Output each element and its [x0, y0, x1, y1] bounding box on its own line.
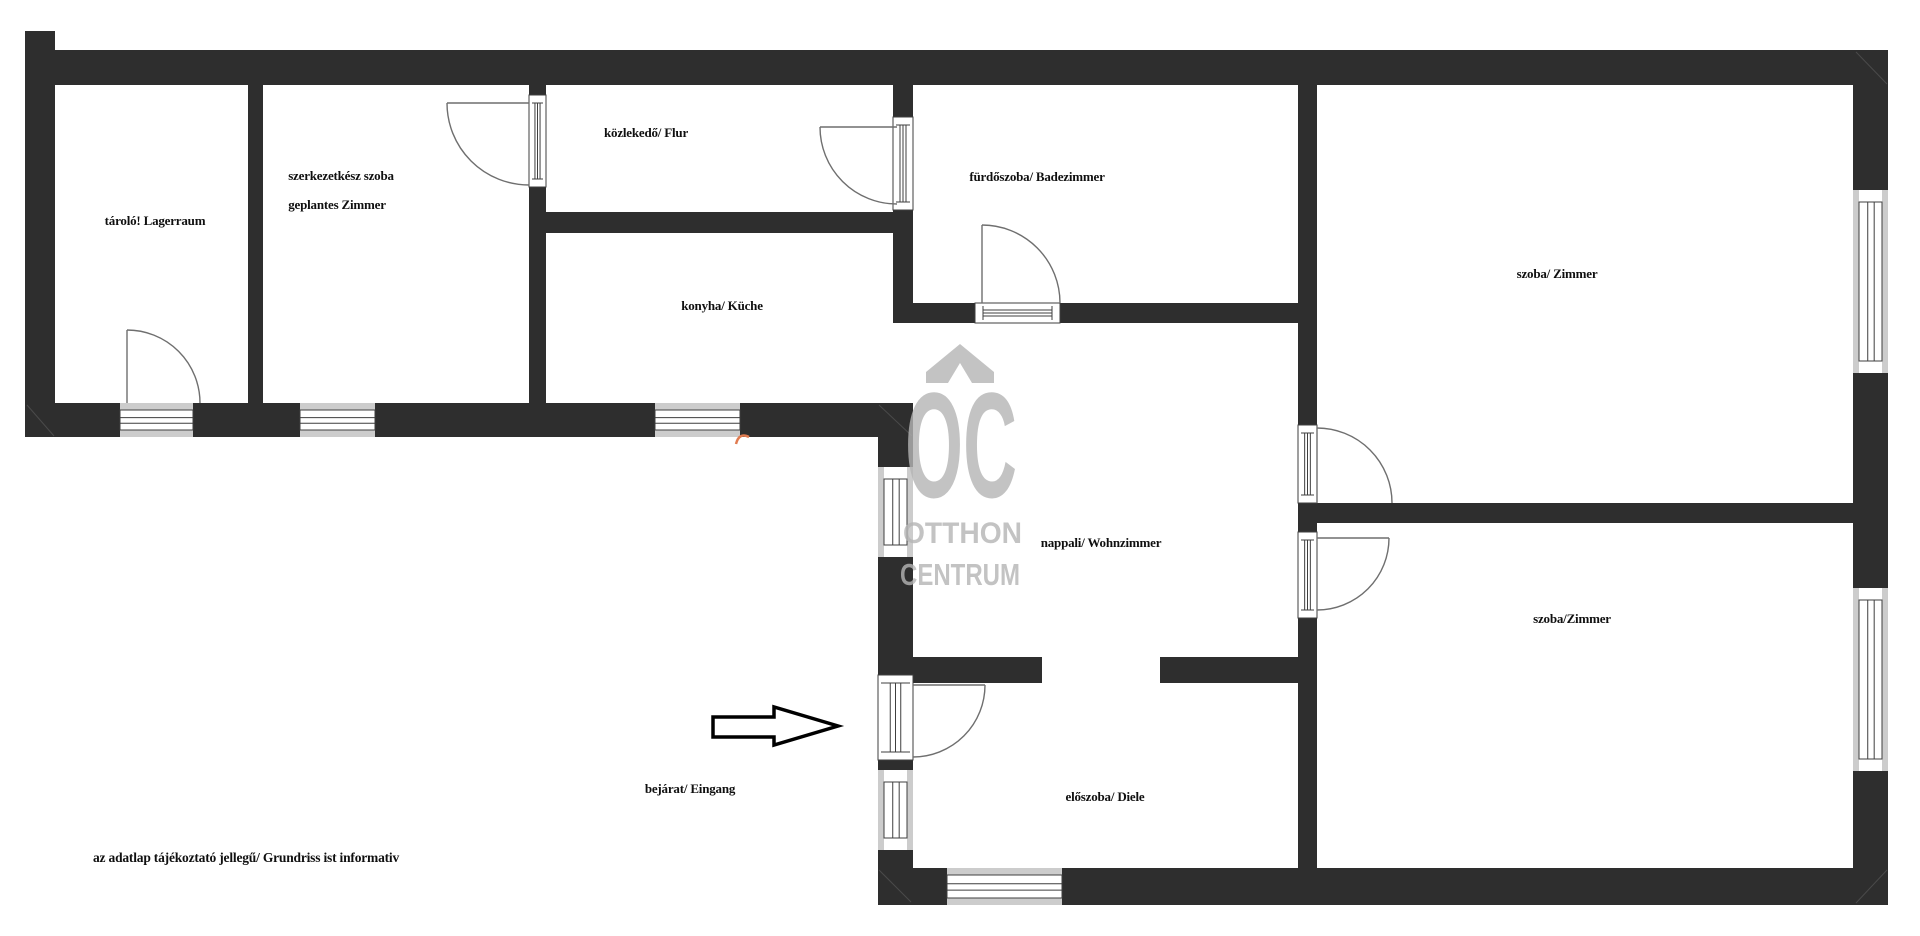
door-arc: [820, 127, 897, 204]
room-label-eloszoba: előszoba/ Diele: [1066, 789, 1145, 804]
room-label-szerk2: geplantes Zimmer: [288, 197, 386, 212]
room-label-taro: tároló! Lagerraum: [105, 213, 206, 228]
door-arc: [447, 103, 529, 185]
entrance-side-window: [878, 770, 913, 850]
room-label-kozlekedo: közlekedő/ Flur: [604, 125, 688, 140]
window-glass: [947, 875, 1062, 898]
floor-plan-page: OCOTTHONCENTRUM tároló! Lagerraumszerkez…: [0, 0, 1920, 936]
door-arc: [913, 685, 985, 757]
door-arc: [982, 225, 1060, 303]
entrance-door-frame: [878, 675, 913, 760]
wall-hall-livingroom-stub-right: [1160, 657, 1298, 683]
door-arc: [1317, 538, 1389, 610]
room-label-szoba-top: szoba/ Zimmer: [1517, 266, 1598, 281]
window-glass: [120, 410, 193, 430]
room2-window: [300, 403, 375, 437]
annotations-layer: [713, 436, 838, 745]
room-label-szerk1: szerkezetkész szoba: [288, 168, 394, 183]
disclaimer-text: az adatlap tájékoztató jellegű/ Grundris…: [93, 850, 399, 865]
watermark-layer: OCOTTHONCENTRUM: [900, 344, 1022, 592]
wall-flur-bottom: [546, 212, 893, 233]
storage-terrace-door: [120, 403, 193, 437]
watermark-otthon-text: OTTHON: [903, 517, 1022, 550]
bath-door-swing: [982, 225, 1060, 303]
room-top-door-swing: [1317, 428, 1392, 503]
watermark-oc-text: OC: [905, 361, 1017, 529]
room2-door-swing: [447, 103, 529, 185]
door-arc: [127, 330, 200, 403]
room-label-konyha: konyha/ Küche: [681, 298, 763, 313]
room2-flur-door-frame: [529, 95, 546, 187]
room-label-nappali: nappali/ Wohnzimmer: [1041, 535, 1162, 550]
wall-outer-top: [55, 50, 1888, 85]
flur-door-swing: [820, 127, 897, 204]
wall-outer-left-bar: [25, 31, 55, 437]
window-glass: [655, 410, 740, 430]
storage-door-swing: [127, 330, 200, 403]
window-frame: [884, 782, 907, 838]
watermark-logo: OCOTTHONCENTRUM: [900, 344, 1022, 592]
room-top-window: [1853, 190, 1888, 373]
window-frame: [1859, 202, 1882, 361]
hall-window: [947, 868, 1062, 905]
room-top-door-frame: [1298, 425, 1317, 503]
floor-plan-drawing: OCOTTHONCENTRUM tároló! Lagerraumszerkez…: [0, 0, 1920, 936]
room-label-furdoszoba: fürdőszoba/ Badezimmer: [969, 169, 1105, 184]
entrance-arrow-icon: [713, 707, 838, 745]
watermark-centrum-text: CENTRUM: [900, 557, 1020, 592]
door-arc: [1317, 428, 1392, 503]
room-label-szoba-bot: szoba/Zimmer: [1533, 611, 1611, 626]
bath-bottom-door-frame: [975, 303, 1060, 323]
wall-divider-right-rooms: [1317, 503, 1853, 523]
flur-bath-door-frame: [893, 117, 913, 210]
room-labels-layer: tároló! Lagerraumszerkezetkész szobagepl…: [93, 125, 1611, 865]
window-glass: [300, 410, 375, 430]
wall-divider-storage-room2: [248, 85, 263, 403]
room-label-bejarat: bejárat/ Eingang: [645, 781, 736, 796]
wall-hall-livingroom-stub-left: [913, 657, 1042, 683]
window-frame: [1859, 600, 1882, 759]
room-bottom-door-frame: [1298, 532, 1317, 618]
kitchen-window: [655, 403, 740, 437]
wall-bath-bottom: [893, 303, 1298, 323]
room-bottom-window: [1853, 588, 1888, 771]
room-bottom-door-swing: [1317, 538, 1389, 610]
entrance-door-swing: [913, 685, 985, 757]
